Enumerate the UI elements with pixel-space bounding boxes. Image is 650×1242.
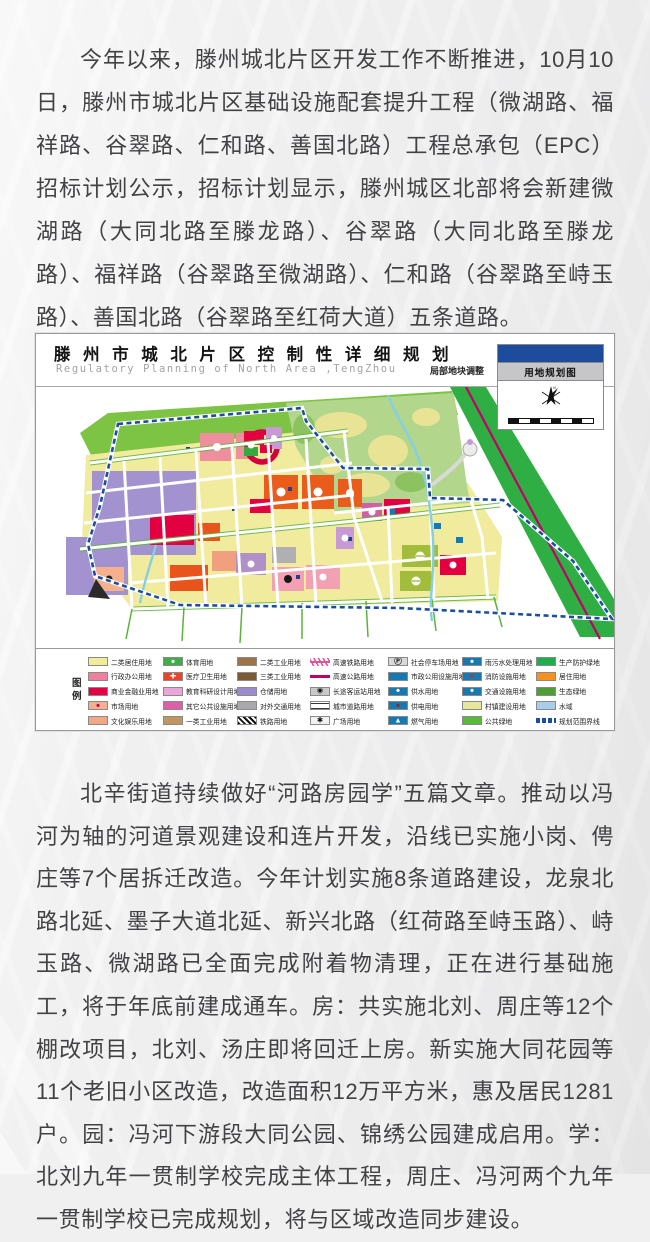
legend-swatch	[536, 657, 556, 666]
legend-label: 高速公路用地	[333, 671, 374, 681]
map-legend: 图 例 二类居住用地行政办公用地商业金融业用地●市场用地文化娱乐用地●体育用地✚…	[36, 648, 614, 730]
legend-item: ▲燃气用地	[388, 714, 462, 727]
legend-item: 行政办公用地	[88, 670, 163, 683]
legend-label: 生态绿地	[559, 686, 586, 696]
legend-item: ✱广场用地	[310, 714, 388, 727]
legend-item: ●供电用地	[388, 699, 462, 712]
legend-item: ◉长途客运站用地	[310, 685, 388, 698]
legend-label: 三类工业用地	[260, 671, 301, 681]
planning-map-figure[interactable]: 滕 州 市 城 北 片 区 控 制 性 详 细 规 划 Regulatory P…	[35, 333, 615, 731]
legend-swatch	[237, 687, 257, 696]
legend-item: 对外交通用地	[237, 699, 310, 712]
legend-item: 高速铁路用地	[310, 655, 388, 668]
map-title: 滕 州 市 城 北 片 区 控 制 性 详 细 规 划	[54, 341, 453, 365]
legend-swatch	[237, 672, 257, 681]
legend-item: 公共绿地	[462, 714, 536, 727]
legend-label: 交通设施用地	[485, 686, 526, 696]
legend-item: 三类工业用地	[237, 670, 310, 683]
legend-swatch: ●	[88, 701, 108, 710]
legend-label: 村镇建设用地	[485, 701, 526, 711]
legend-label: 仓储用地	[260, 686, 287, 696]
legend-item: Ⓟ社会停车场用地	[388, 655, 462, 668]
legend-item: ✚医疗卫生用地	[163, 670, 237, 683]
legend-item: ●市场用地	[88, 699, 163, 712]
legend-swatch: ◉	[310, 687, 330, 696]
legend-column: 高速铁路用地高速公路用地◉长途客运站用地城市道路用地✱广场用地	[310, 654, 388, 728]
legend-item: ●供水用地	[388, 685, 462, 698]
legend-column: ●雨污水处理用地●消防设施用地●交通设施用地村镇建设用地公共绿地	[462, 654, 536, 728]
legend-column: ●体育用地✚医疗卫生用地教育科研设计用地其它公共设施用地一类工业用地	[163, 654, 237, 728]
legend-label: 文化娱乐用地	[111, 716, 152, 726]
legend-swatch	[388, 672, 408, 681]
legend-label: 消防设施用地	[485, 671, 526, 681]
legend-label: 供水用地	[411, 686, 438, 696]
legend-label: 生产防护绿地	[559, 657, 600, 667]
legend-item: 仓储用地	[237, 685, 310, 698]
legend-column: Ⓟ社会停车场用地市政公用设施用地●供水用地●供电用地▲燃气用地	[388, 654, 462, 728]
map-subtitle: Regulatory Planning of North Area ,TengZ…	[56, 363, 397, 375]
legend-swatch	[536, 716, 556, 725]
legend-item: 文化娱乐用地	[88, 714, 163, 727]
legend-item: ●体育用地	[163, 655, 237, 668]
legend-title-char-1: 图	[72, 677, 82, 690]
legend-swatch	[237, 716, 257, 725]
legend-swatch	[237, 657, 257, 666]
legend-label: 居住用地	[559, 671, 586, 681]
map-info-panel: 用地规划图 N	[497, 344, 604, 430]
legend-item: 铁路用地	[237, 714, 310, 727]
legend-item: 村镇建设用地	[462, 699, 536, 712]
legend-label: 广场用地	[333, 716, 360, 726]
legend-label: 雨污水处理用地	[485, 657, 533, 667]
legend-label: 行政办公用地	[111, 671, 152, 681]
legend-label: 二类工业用地	[260, 657, 301, 667]
legend-item: 二类居住用地	[88, 655, 163, 668]
legend-swatch: ●	[163, 657, 183, 666]
panel-title: 用地规划图	[498, 363, 603, 381]
legend-swatch: ●	[462, 687, 482, 696]
legend-column: 生产防护绿地居住用地生态绿地水域规划范围界线	[536, 654, 612, 728]
legend-swatch	[462, 716, 482, 725]
legend-column: 二类工业用地三类工业用地仓储用地对外交通用地铁路用地	[237, 654, 310, 728]
legend-swatch	[237, 701, 257, 710]
legend-label: 长途客运站用地	[333, 686, 381, 696]
legend-label: 公共绿地	[485, 716, 512, 726]
legend-label: 教育科研设计用地	[186, 686, 240, 696]
legend-label: 对外交通用地	[260, 701, 301, 711]
legend-label: 铁路用地	[260, 716, 287, 726]
legend-item: 规划范围界线	[536, 714, 612, 727]
legend-item: 居住用地	[536, 670, 612, 683]
legend-item: ●消防设施用地	[462, 670, 536, 683]
compass-icon: N	[538, 384, 564, 410]
legend-swatch	[462, 701, 482, 710]
article-paragraph-2: 北辛街道持续做好“河路房园学”五篇文章。推动以冯河为轴的河道景观建设和连片开发，…	[36, 773, 614, 1242]
legend-swatch	[536, 701, 556, 710]
legend-label: 二类居住用地	[111, 657, 152, 667]
legend-grid: 二类居住用地行政办公用地商业金融业用地●市场用地文化娱乐用地●体育用地✚医疗卫生…	[88, 654, 612, 728]
legend-swatch	[536, 687, 556, 696]
legend-item: 市政公用设施用地	[388, 670, 462, 683]
legend-swatch	[88, 687, 108, 696]
legend-item: 商业金融业用地	[88, 685, 163, 698]
legend-column: 二类居住用地行政办公用地商业金融业用地●市场用地文化娱乐用地	[88, 654, 163, 728]
legend-label: 医疗卫生用地	[186, 671, 227, 681]
legend-swatch: ✚	[163, 672, 183, 681]
legend-swatch	[88, 672, 108, 681]
legend-label: 燃气用地	[411, 716, 438, 726]
legend-label: 体育用地	[186, 657, 213, 667]
adjustment-note: 局部地块调整	[430, 364, 484, 377]
legend-label: 社会停车场用地	[411, 657, 459, 667]
legend-item: 生产防护绿地	[536, 655, 612, 668]
legend-title-char-2: 例	[72, 690, 82, 703]
svg-text:N: N	[553, 385, 556, 390]
legend-item: 生态绿地	[536, 685, 612, 698]
legend-swatch: ●	[462, 672, 482, 681]
legend-item: 高速公路用地	[310, 670, 388, 683]
legend-item: 其它公共设施用地	[163, 699, 237, 712]
legend-swatch	[310, 672, 330, 681]
legend-item: ●雨污水处理用地	[462, 655, 536, 668]
legend-label: 水域	[559, 701, 573, 711]
legend-label: 规划范围界线	[559, 716, 600, 726]
panel-blue-bar	[498, 345, 603, 363]
legend-swatch	[163, 716, 183, 725]
legend-item: ●交通设施用地	[462, 685, 536, 698]
legend-swatch	[163, 687, 183, 696]
legend-swatch: ▲	[388, 716, 408, 725]
legend-swatch	[310, 701, 330, 710]
legend-label: 城市道路用地	[333, 701, 374, 711]
legend-swatch	[310, 657, 330, 666]
legend-swatch	[163, 701, 183, 710]
legend-swatch: ✱	[310, 716, 330, 725]
legend-label: 供电用地	[411, 701, 438, 711]
legend-item: 水域	[536, 699, 612, 712]
legend-swatch: Ⓟ	[388, 657, 408, 666]
panel-body: N	[498, 381, 603, 430]
legend-item: 一类工业用地	[163, 714, 237, 727]
legend-label: 其它公共设施用地	[186, 701, 240, 711]
scale-bar	[508, 418, 594, 424]
article-paragraph-1: 今年以来，滕州城北片区开发工作不断推进，10月10日，滕州市城北片区基础设施配套…	[36, 38, 614, 339]
legend-swatch: ●	[388, 687, 408, 696]
legend-swatch	[536, 672, 556, 681]
legend-label: 一类工业用地	[186, 716, 227, 726]
legend-item: 教育科研设计用地	[163, 685, 237, 698]
legend-item: 二类工业用地	[237, 655, 310, 668]
legend-swatch: ●	[462, 657, 482, 666]
legend-title: 图 例	[72, 677, 82, 703]
legend-label: 市政公用设施用地	[411, 671, 465, 681]
legend-swatch: ●	[388, 701, 408, 710]
legend-label: 商业金融业用地	[111, 686, 159, 696]
legend-swatch	[88, 716, 108, 725]
legend-label: 市场用地	[111, 701, 138, 711]
legend-swatch	[88, 657, 108, 666]
legend-label: 高速铁路用地	[333, 657, 374, 667]
legend-item: 城市道路用地	[310, 699, 388, 712]
